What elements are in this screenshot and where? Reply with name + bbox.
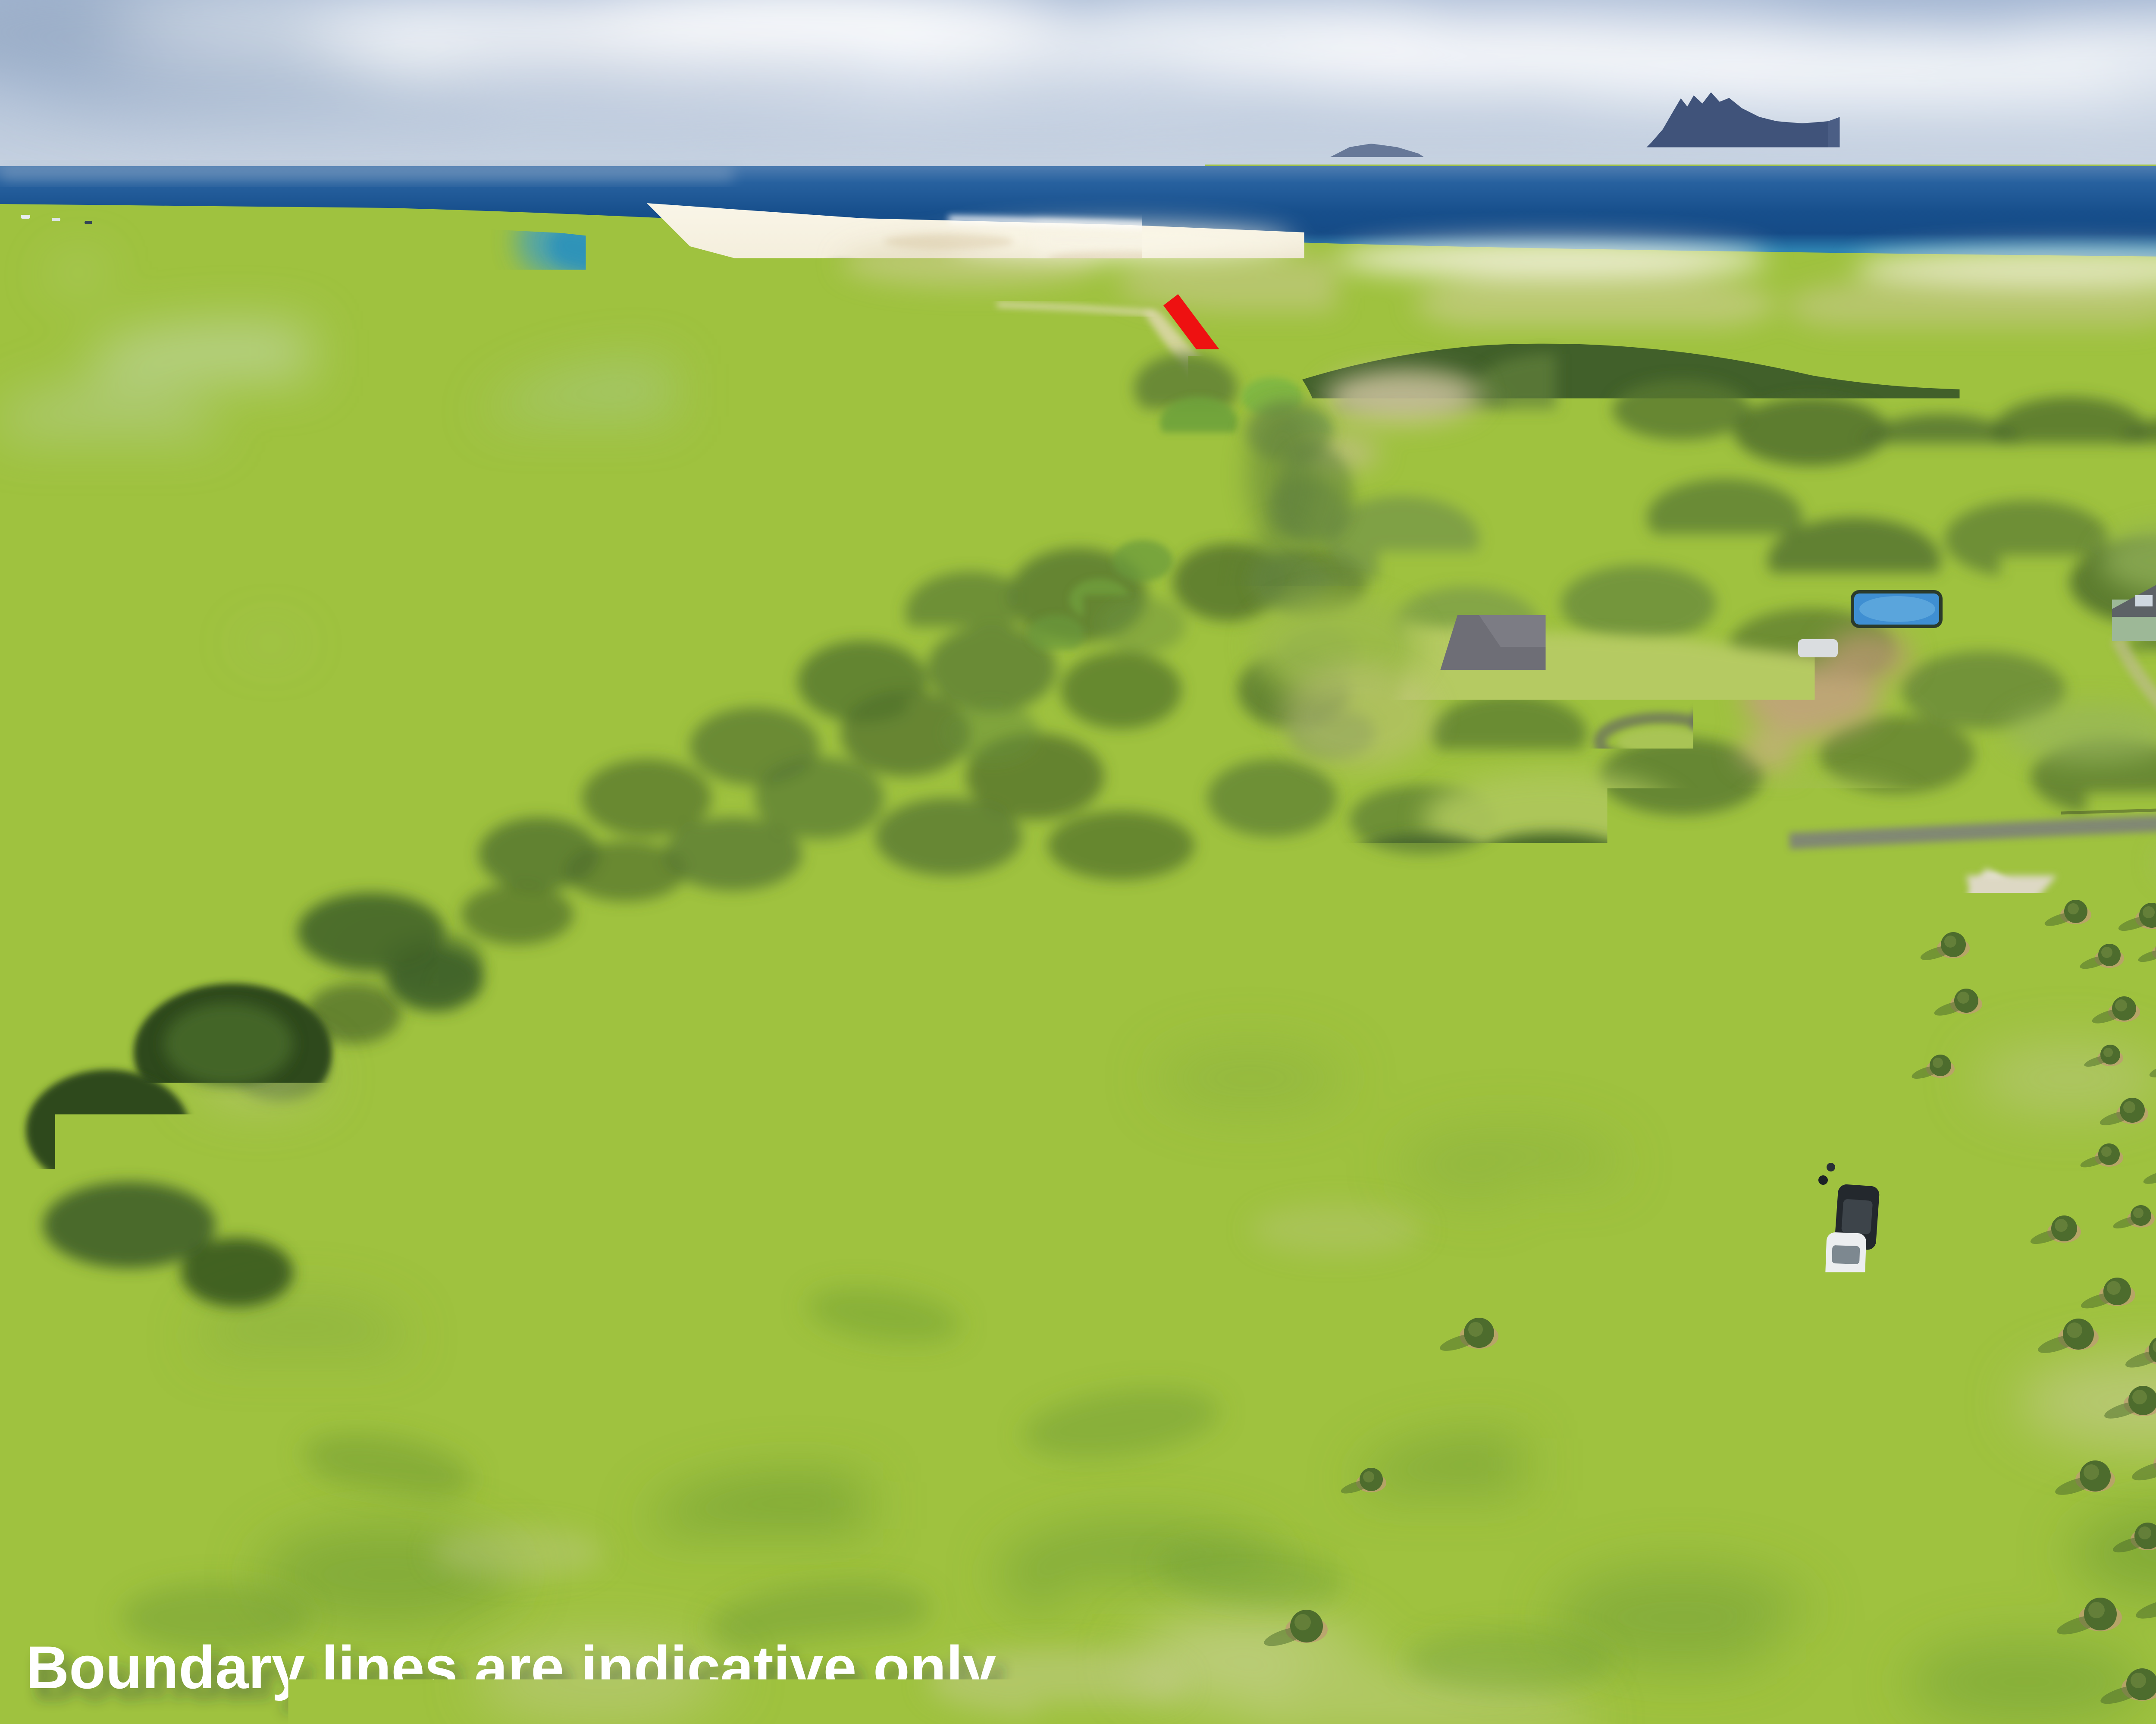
svg-text:Boundary lines are indicative: Boundary lines are indicative only <box>26 1633 996 1701</box>
svg-text:Boat Ramp: Boat Ramp <box>800 352 1211 441</box>
